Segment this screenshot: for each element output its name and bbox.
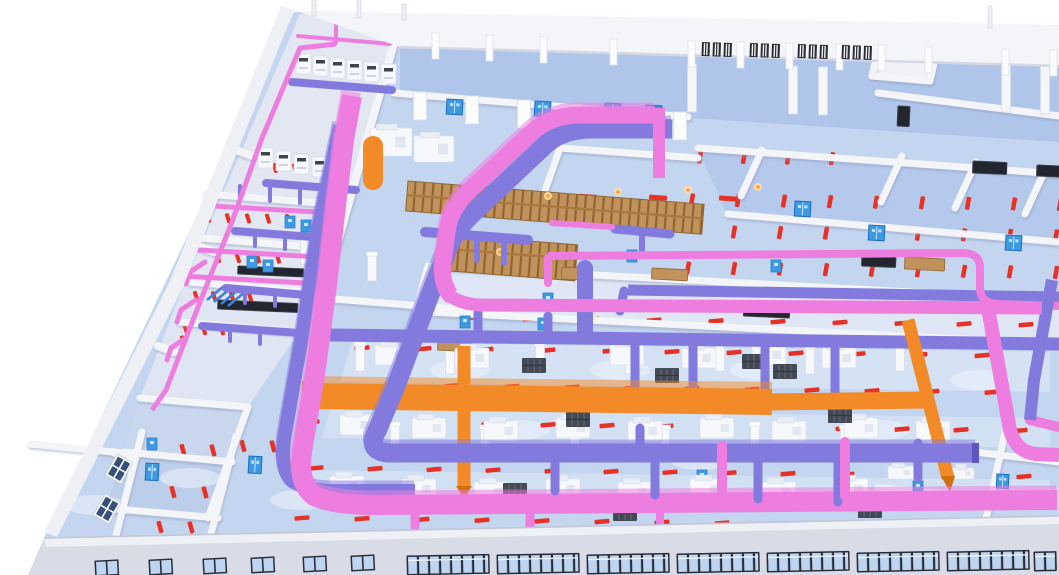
small-window (148, 558, 173, 575)
column (367, 252, 378, 281)
dark-screen (897, 106, 910, 127)
blue-panel (285, 216, 295, 228)
column (805, 345, 816, 374)
window-group (842, 45, 872, 60)
ahu-unit (381, 64, 396, 84)
small-window (94, 559, 119, 575)
pilaster (432, 33, 439, 59)
wall-pillar (414, 92, 427, 120)
blue-door (794, 201, 811, 217)
pilaster (540, 37, 547, 63)
pallet-stack (773, 364, 797, 379)
rack-lamp-core (546, 194, 550, 198)
roof-post (357, 0, 361, 18)
machine (682, 344, 716, 368)
blue-panel (460, 316, 470, 328)
tall-column (1041, 66, 1050, 114)
bim-3d-viewport[interactable] (0, 0, 1059, 575)
orange-main-duct-tapered (760, 400, 932, 402)
tall-column (789, 66, 798, 114)
machine (628, 417, 662, 441)
pilaster (737, 42, 744, 68)
blue-panel (263, 260, 273, 272)
dark-screen (972, 161, 1006, 174)
ahu-unit (258, 148, 273, 168)
tall-column (688, 64, 697, 112)
machine (484, 417, 518, 441)
pilaster (786, 43, 793, 69)
wall-pillar (466, 96, 479, 124)
machine (700, 414, 734, 438)
rack-lamp-core (686, 188, 690, 192)
ahu-unit (294, 154, 309, 174)
machine (412, 414, 446, 438)
pilaster (688, 41, 695, 67)
small-window (250, 556, 275, 573)
wooden-desk (904, 257, 945, 271)
branch-duct (552, 223, 612, 227)
bim-scene-svg (0, 0, 1059, 575)
blue-panel (247, 256, 257, 268)
purple-duct-end-cap (972, 443, 979, 463)
ribbon-window (586, 553, 669, 575)
rack-lamp-core (756, 185, 760, 189)
blue-door (446, 99, 463, 115)
pilaster (1050, 50, 1057, 76)
tall-column (819, 67, 828, 115)
roof-post (312, 0, 316, 16)
blue-door (1005, 235, 1022, 251)
ahu-unit (276, 151, 291, 171)
pallet-stack (828, 408, 852, 423)
blue-panel (771, 260, 781, 272)
floor-glow (160, 468, 220, 488)
blue-door (868, 225, 885, 241)
ribbon-window (856, 551, 939, 573)
small-window (350, 554, 375, 571)
ahu-unit (364, 62, 379, 82)
pilaster (925, 47, 932, 73)
purple-mid-corridor-duct (330, 335, 1059, 344)
ribbon-window (496, 553, 579, 575)
ahu-unit (330, 58, 345, 78)
pilaster (878, 45, 885, 71)
wooden-desk (651, 268, 688, 281)
dark-screen (1037, 165, 1059, 177)
ribbon-window (1033, 551, 1056, 571)
pilaster (486, 35, 493, 61)
window-group (702, 42, 732, 57)
blue-door (145, 463, 159, 481)
ribbon-window (406, 554, 489, 575)
ahu-unit (313, 56, 328, 76)
small-window (202, 557, 227, 574)
blue-door (248, 456, 262, 474)
wall (872, 76, 930, 81)
roof-post (988, 6, 992, 28)
wall-pillar (674, 112, 687, 140)
pilaster (1002, 49, 1009, 75)
roof-post (402, 4, 406, 20)
ribbon-window (946, 550, 1029, 572)
wall (236, 150, 252, 156)
window-group (798, 44, 828, 59)
small-window (302, 555, 327, 572)
branch-duct (1030, 420, 1059, 427)
machine (772, 417, 806, 441)
blue-panel (147, 438, 157, 450)
pallet-stack (566, 412, 590, 427)
window-group (750, 43, 780, 58)
ahu-unit (347, 60, 362, 80)
machine (414, 132, 454, 162)
column (355, 342, 366, 371)
ribbon-window (676, 552, 759, 574)
pilaster (610, 39, 617, 65)
pallet-stack (522, 358, 546, 373)
purple-corridor-duct-upper (628, 290, 1059, 297)
ribbon-window (766, 551, 849, 573)
rack-lamp-core (616, 190, 620, 194)
